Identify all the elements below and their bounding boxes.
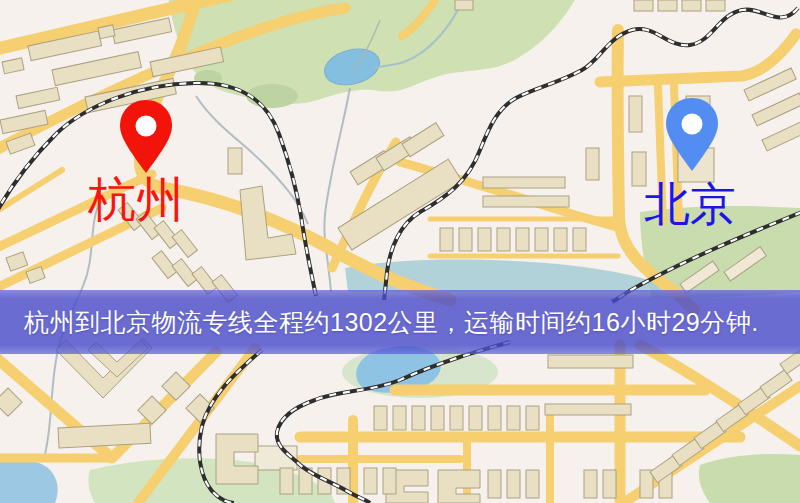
map-canvas[interactable]: 杭州 北京 xyxy=(0,0,800,503)
origin-label: 杭州 xyxy=(87,173,184,226)
origin-pin-hole xyxy=(136,116,157,137)
route-info-banner: 杭州到北京物流专线全程约1302公里，运输时间约16小时29分钟. xyxy=(0,290,800,354)
destination-pin-hole xyxy=(682,114,703,135)
destination-label: 北京 xyxy=(644,178,736,230)
route-info-text: 杭州到北京物流专线全程约1302公里，运输时间约16小时29分钟. xyxy=(24,306,759,339)
